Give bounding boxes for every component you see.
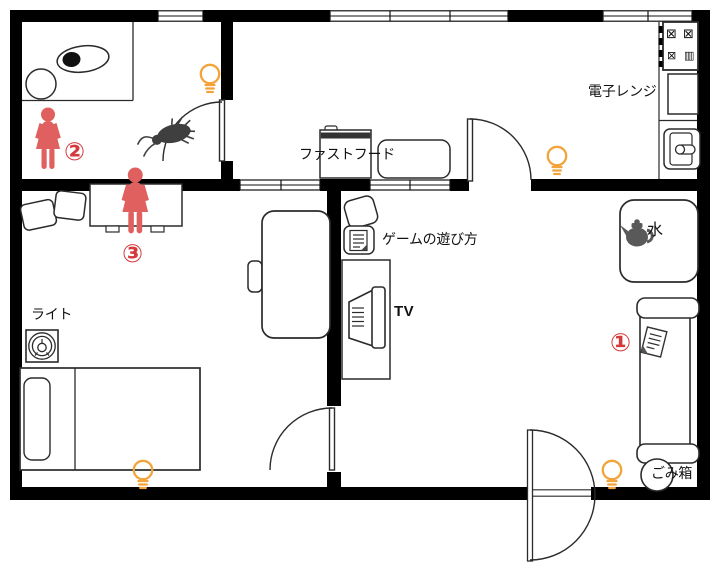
kitchen-counter-square [668,74,698,114]
light-bulb-icon-kitchen [548,147,566,174]
cushion [343,194,380,229]
window-mid-1 [240,180,320,190]
study-desk [248,211,330,338]
label-trash-bin: ごみ箱 [651,466,692,481]
bed [20,368,200,470]
paper-pad [20,199,58,231]
sink-icon [26,69,56,99]
marker-1: ① [610,331,631,356]
game-manual-icon [344,226,374,254]
light-bulb-icon-bathroom [201,65,219,92]
kitchen-door [468,119,532,181]
kitchen-sink-icon [664,129,700,169]
sofa [637,298,699,463]
wall-right [697,10,710,500]
marker-3: ③ [122,242,143,267]
stove-burner-icon: ⊠ [667,51,676,62]
wall-bathroom-vertical [221,161,233,191]
label-game-guide: ゲームの遊び方 [382,232,477,247]
stove-burner-icon: ⊠ [683,27,694,40]
label-fast-food: ファストフード [299,147,395,162]
wall-mid-horizontal [531,179,710,191]
wall-bottom-segment [10,487,530,500]
wall-bathroom-vertical [221,10,233,100]
bathroom [22,22,133,101]
wall-top-segment [10,10,158,22]
entrance-door [528,430,596,561]
light-bulb-icon-entrance [603,461,621,488]
label-water: 水 [647,222,663,240]
window-top-1 [158,11,203,21]
marker-2: ② [64,140,85,165]
female-person-icon-2 [35,108,61,170]
cockroach-icon [133,114,198,157]
window-top-3 [603,11,692,21]
label-microwave: 電子レンジ [588,84,657,99]
window-mid-2 [370,180,450,190]
toilet-icon [56,43,111,75]
window-top-2 [330,11,508,21]
bedroom-door [270,408,335,470]
wall-top-segment [508,10,603,22]
ceiling-light-icon [26,330,58,362]
bedroom [20,184,330,470]
stove-burner-icon: ▥ [684,51,694,62]
floor-plan: 電子レンジ ファストフード ゲームの遊び方 TV 水 ライト ごみ箱 ① ② ③… [0,0,721,570]
paper-pad [53,190,86,220]
label-light: ライト [31,307,72,322]
stove-burner-icon: ⊠ [666,27,677,40]
label-tv: TV [394,304,414,321]
wall-mid-horizontal [450,179,469,191]
